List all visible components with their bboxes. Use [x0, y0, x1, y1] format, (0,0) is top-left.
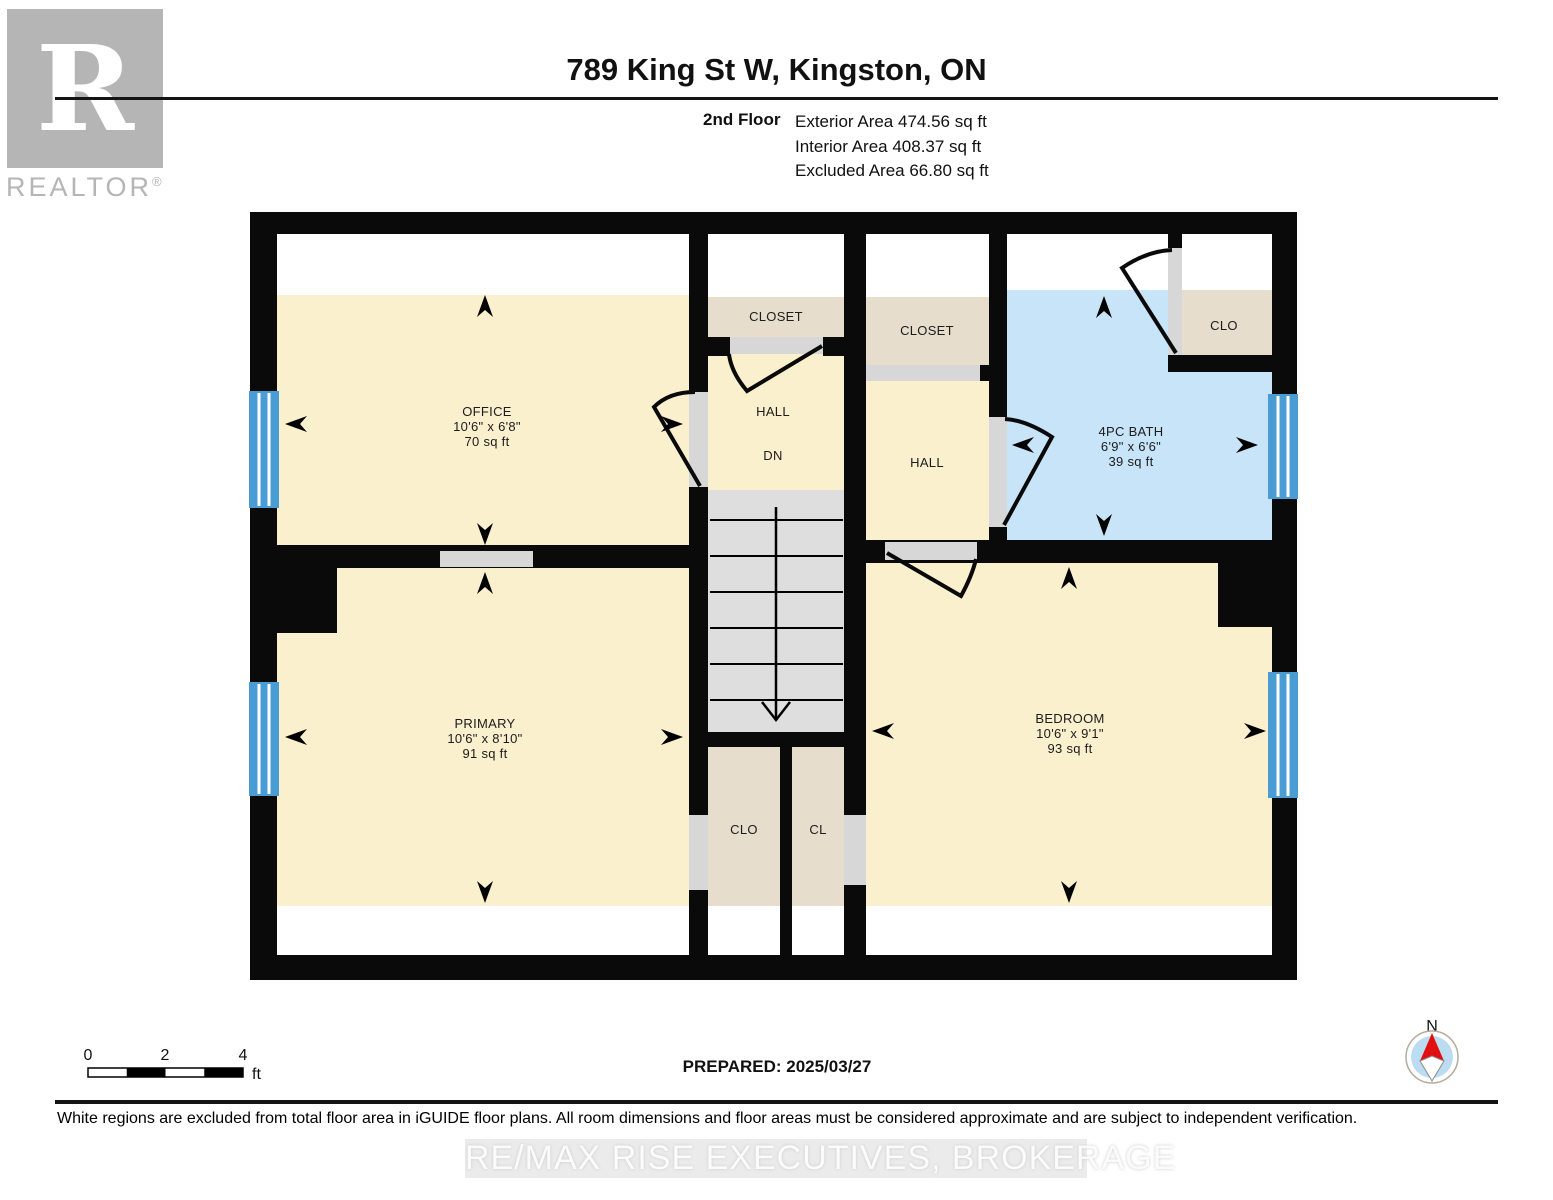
scale-bar-segment	[127, 1068, 166, 1077]
brokerage-watermark: RE/MAX RISE EXECUTIVES, BROKERAGE	[465, 1139, 1087, 1178]
clo-top-label: CLO	[1210, 318, 1238, 333]
header-divider	[55, 97, 1498, 100]
cl-excluded-region	[792, 906, 844, 955]
office-dims: 10'6" x 6'8"	[453, 419, 521, 434]
cl-label: CL	[809, 822, 826, 837]
prepared-date: PREPARED: 2025/03/27	[577, 1057, 977, 1077]
primary-window	[249, 682, 279, 796]
primary-area: 91 sq ft	[462, 746, 507, 761]
primary-dims: 10'6" x 8'10"	[447, 731, 522, 746]
closet-right-label: CLOSET	[900, 323, 954, 338]
office-label: OFFICE	[462, 404, 511, 419]
closet-right-opening	[866, 365, 980, 381]
primary-excluded-region	[277, 906, 689, 955]
scale-tick-0: 0	[84, 1047, 93, 1064]
scale-unit-label: ft	[252, 1066, 261, 1083]
floor-plan-drawing: OFFICE 10'6" x 6'8" 70 sq ft CLOSET HALL…	[0, 0, 1553, 1200]
clo-bottom-opening	[689, 815, 708, 890]
bath-label: 4PC BATH	[1098, 424, 1163, 439]
bath-area: 39 sq ft	[1108, 454, 1153, 469]
cl-opening	[844, 815, 866, 885]
scale-tick-4: 4	[239, 1047, 248, 1064]
office-area: 70 sq ft	[464, 434, 509, 449]
closet-right-excluded-region	[866, 234, 989, 297]
scale-bar-segment	[204, 1068, 243, 1077]
bath-window	[1268, 394, 1298, 499]
office-primary-opening	[440, 551, 533, 567]
hall-right-label: HALL	[910, 455, 944, 470]
bath-doorway	[989, 417, 1007, 527]
primary-label: PRIMARY	[454, 716, 515, 731]
disclaimer-text: White regions are excluded from total fl…	[57, 1110, 1357, 1128]
bedroom-dims: 10'6" x 9'1"	[1036, 726, 1104, 741]
bedroom-doorway	[885, 542, 977, 560]
hall-left-dn-label: DN	[763, 448, 782, 463]
clo-top-excluded-region	[1182, 234, 1272, 290]
scale-bar: 0 2 4 ft	[84, 1047, 262, 1083]
closet-left-excluded-region	[708, 234, 844, 297]
clo-top-doorway	[1168, 248, 1182, 355]
scale-tick-2: 2	[161, 1047, 170, 1064]
compass: N	[1406, 1018, 1458, 1083]
office-window	[249, 391, 279, 508]
office-excluded-region	[277, 234, 689, 295]
clo-bottom-excluded-region	[708, 906, 780, 955]
floor-plan-page: R REALTOR® 789 King St W, Kingston, ON 2…	[0, 0, 1553, 1200]
bedroom-label: BEDROOM	[1035, 711, 1104, 726]
bath-dims: 6'9" x 6'6"	[1101, 439, 1161, 454]
bedroom-area: 93 sq ft	[1047, 741, 1092, 756]
bedroom-window	[1268, 672, 1298, 798]
hall-left-label: HALL	[756, 404, 790, 419]
clo-bottom-label: CLO	[730, 822, 758, 837]
footer-divider	[55, 1100, 1498, 1104]
bath-excluded-region	[1007, 234, 1168, 290]
closet-left-label: CLOSET	[749, 309, 803, 324]
bedroom-excluded-region	[866, 906, 1272, 955]
